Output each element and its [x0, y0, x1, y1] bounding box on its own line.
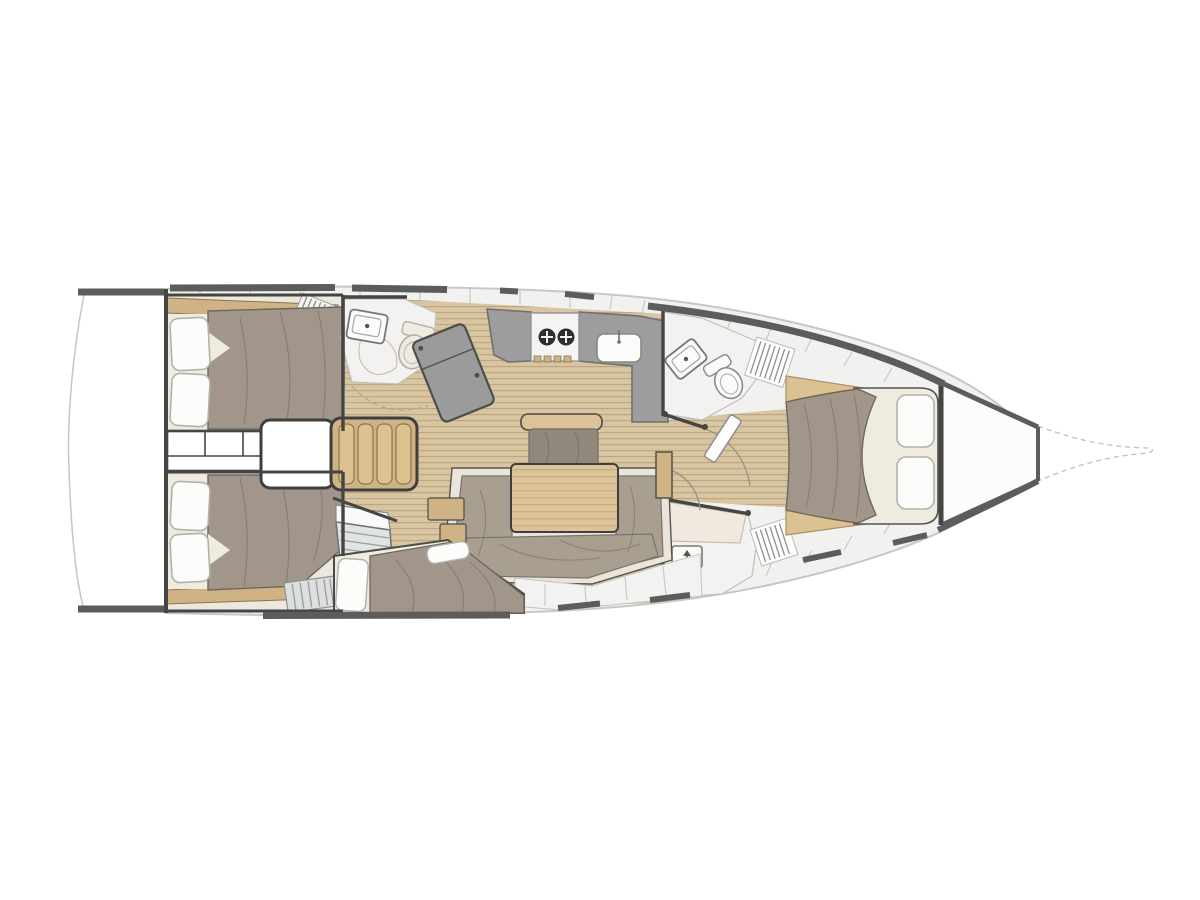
companionway-landing [261, 420, 334, 488]
pillow [897, 395, 934, 447]
locker-slats-icon [284, 576, 340, 613]
cabinet-end [656, 452, 672, 498]
bowsprit [1038, 426, 1153, 481]
companionway-stairs [261, 418, 417, 490]
pillow [170, 533, 210, 583]
pillow [335, 558, 369, 612]
bed-duvet [786, 389, 876, 523]
counter-left [487, 309, 531, 362]
sink-icon [346, 309, 388, 344]
floorplan-svg [0, 0, 1200, 900]
aft-cabin-port [167, 293, 343, 431]
engine-box [167, 431, 262, 471]
forward-cabin [786, 376, 938, 535]
boat-floorplan-canvas [0, 0, 1200, 900]
galley-sink [597, 330, 641, 362]
salon-table [511, 464, 618, 532]
bow [941, 383, 1153, 525]
bed-duvet [208, 307, 343, 429]
pillow [170, 481, 210, 531]
aft-cabin-starboard [167, 473, 343, 613]
swim-platform [69, 291, 168, 610]
bench-cushion [529, 429, 598, 466]
pillow [897, 457, 934, 509]
pillow [170, 317, 211, 371]
side-table [428, 498, 464, 520]
pillow [170, 373, 211, 427]
engine-compartment [167, 431, 262, 471]
bench-backrest [521, 414, 602, 430]
swim-platform-outline [69, 291, 166, 610]
